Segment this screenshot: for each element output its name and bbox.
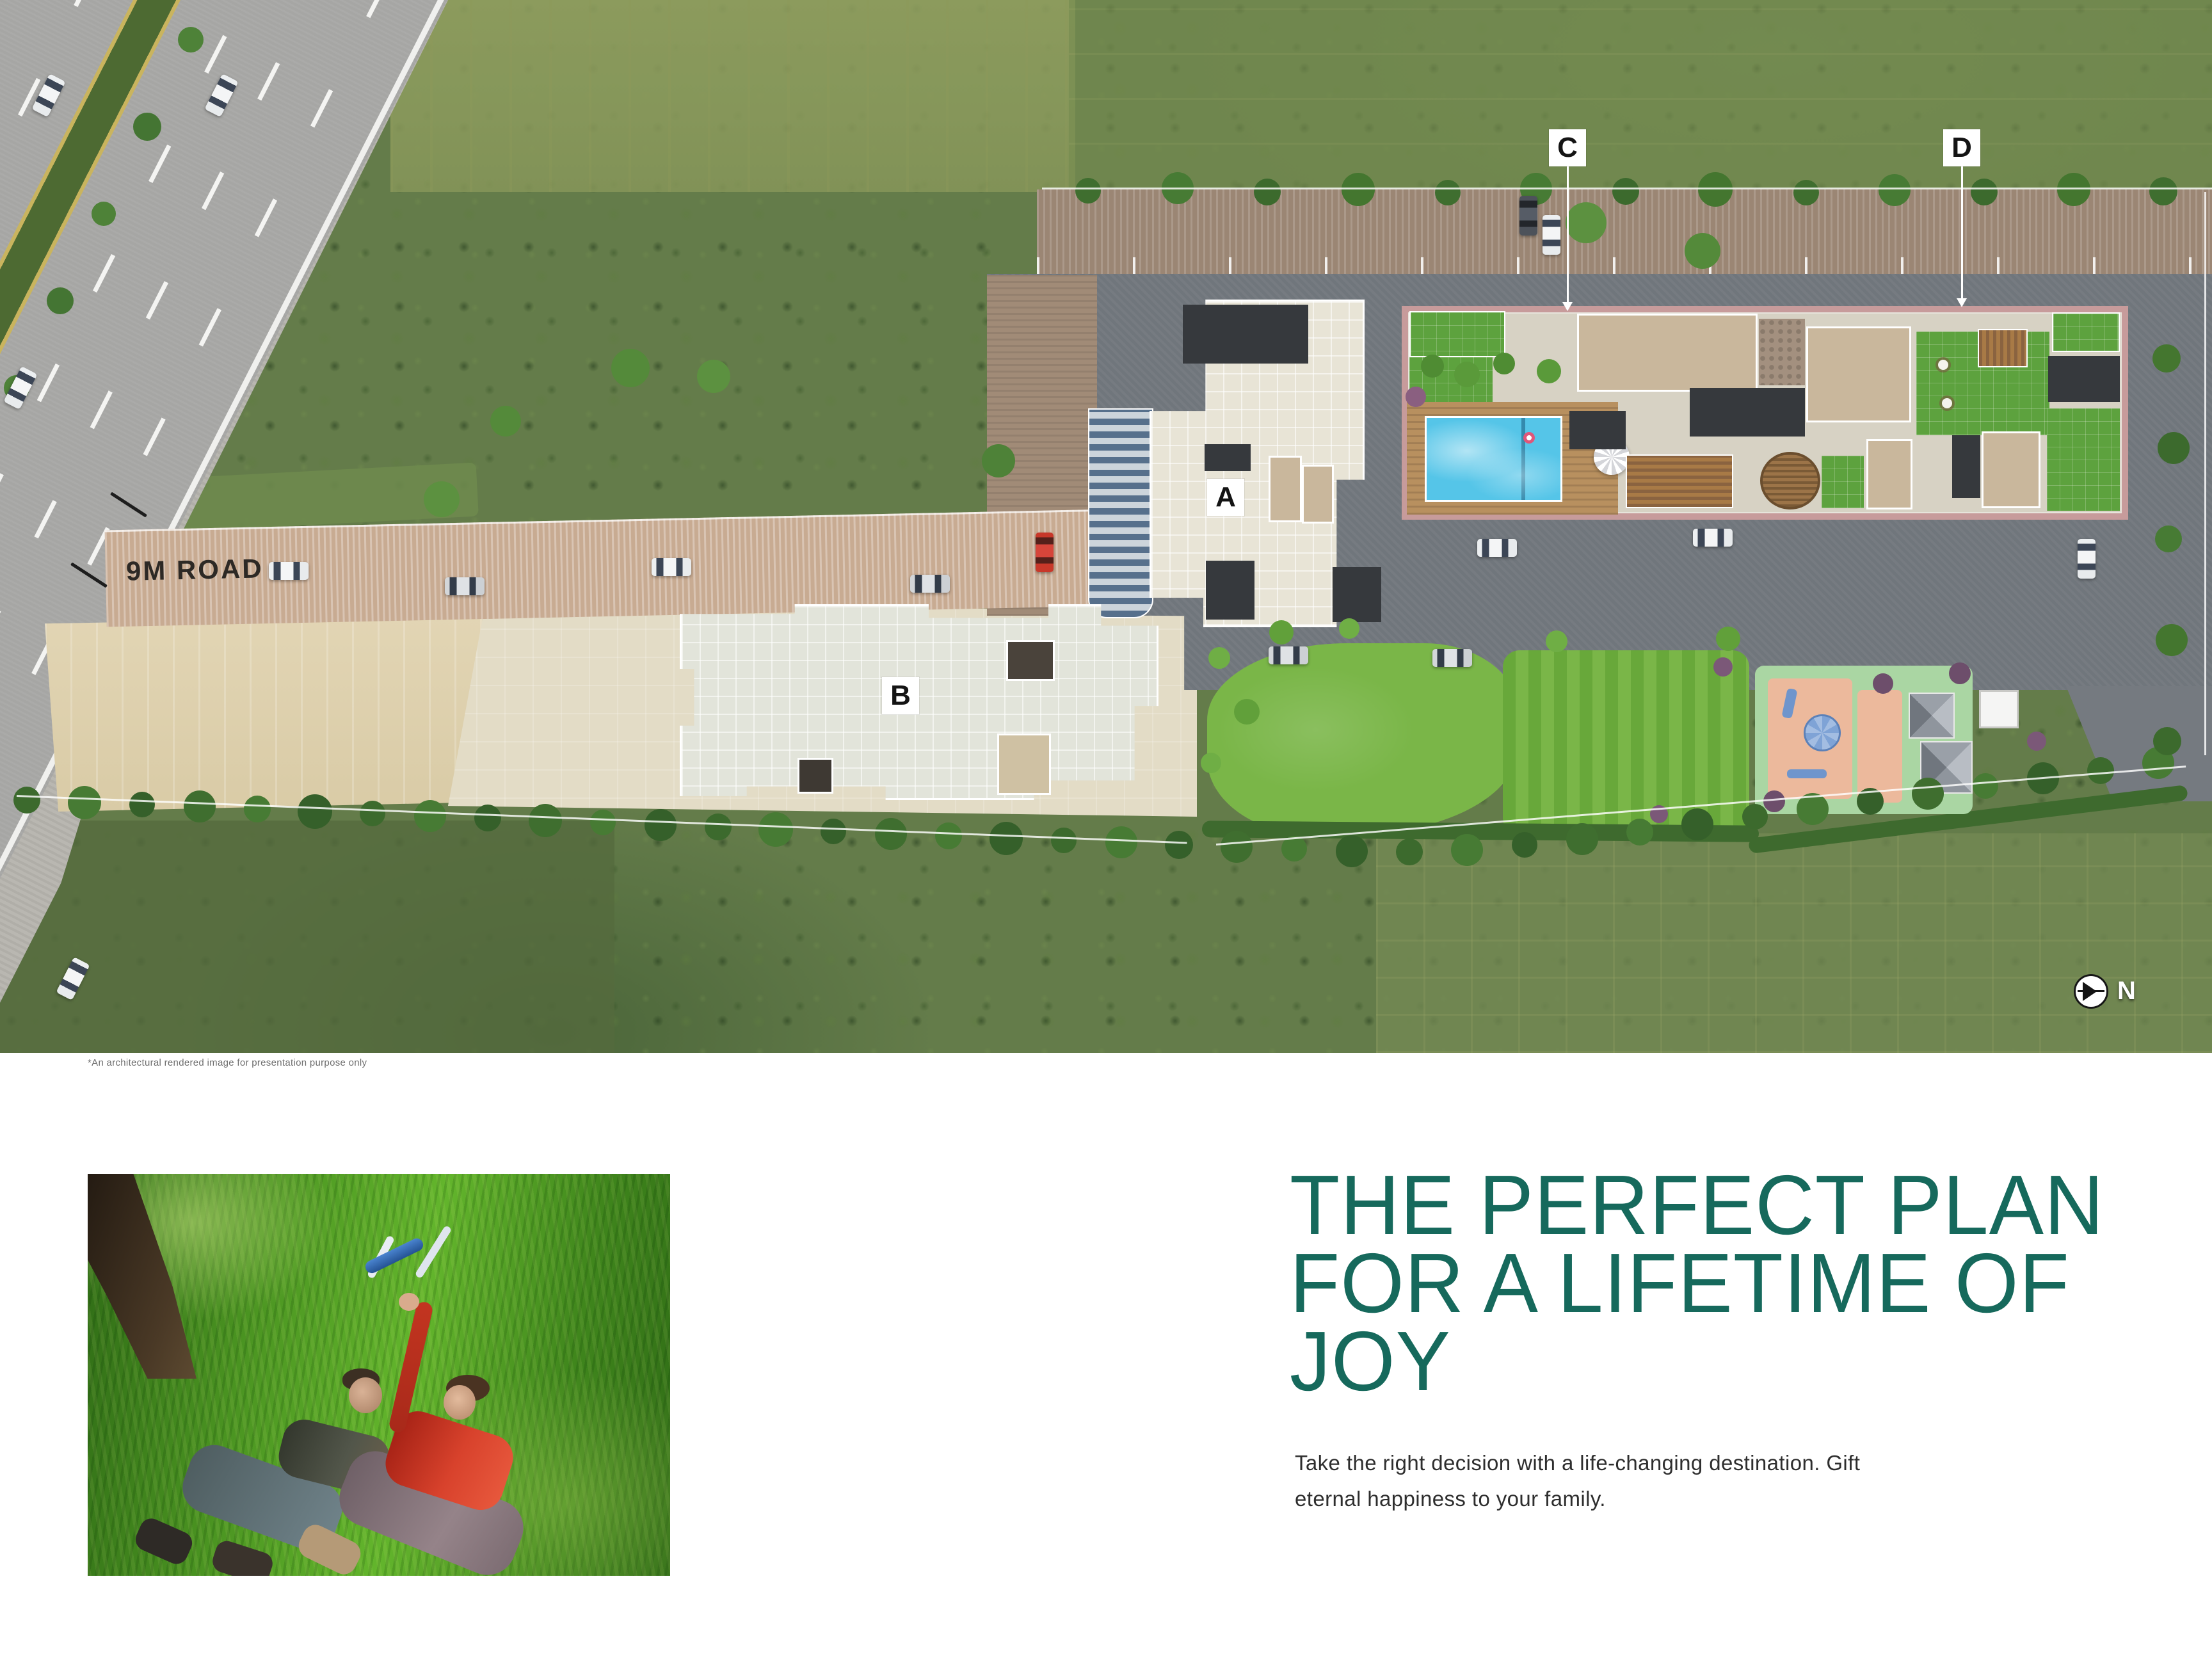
- label-letter: C: [1557, 132, 1578, 164]
- child-left-head: [349, 1377, 382, 1413]
- gazebo: [1979, 690, 2019, 728]
- leader-line-c: [1567, 166, 1569, 307]
- parked-car: [1543, 215, 1560, 255]
- headline: THE PERFECT PLAN FOR A LIFETIME OF JOY: [1290, 1166, 2177, 1400]
- tree-trunk: [88, 1174, 196, 1379]
- roof-block: [1302, 465, 1334, 524]
- roof-block: [2048, 356, 2120, 402]
- toy-airplane: [364, 1237, 426, 1276]
- building-label-b: B: [882, 677, 919, 714]
- car: [2078, 539, 2096, 579]
- body-line-1: Take the right decision with a life-chan…: [1295, 1445, 2205, 1481]
- ramp: [1088, 408, 1153, 618]
- garden-patch: [2047, 408, 2120, 511]
- roof-block: [1952, 435, 1980, 498]
- red-car: [1036, 533, 1054, 572]
- leader-line-d: [1961, 166, 1963, 303]
- car: [445, 577, 485, 595]
- child-left-shoe: [132, 1515, 196, 1567]
- roof-block: [1205, 444, 1251, 471]
- farm-field: [1069, 0, 2212, 189]
- brochure-page: 9M ROAD: [0, 0, 2212, 1659]
- building-label-a: A: [1207, 479, 1244, 516]
- master-plan-rendering: 9M ROAD: [0, 0, 2212, 1053]
- vacant-plot: [45, 616, 496, 812]
- text-block: THE PERFECT PLAN FOR A LIFETIME OF JOY T…: [1290, 1166, 2205, 1517]
- body-line-2: eternal happiness to your family.: [1295, 1481, 2205, 1517]
- north-letter: N: [2117, 977, 2136, 1006]
- play-surface: [1857, 690, 1902, 803]
- parking-strip: [1037, 189, 2212, 276]
- disclaimer-text: *An architectural rendered image for pre…: [88, 1057, 367, 1068]
- wood-deck: [1626, 454, 1733, 508]
- roof-block: [1206, 561, 1254, 620]
- striped-lawn: [1503, 650, 1749, 835]
- roof-block: [1006, 640, 1055, 681]
- child-right-hand: [399, 1293, 419, 1311]
- farm-field: [390, 0, 1075, 192]
- farm-field: [1376, 833, 2212, 1053]
- roof-block: [1690, 388, 1805, 437]
- site-boundary: [1042, 188, 2212, 189]
- headline-line-2: FOR A LIFETIME OF JOY: [1290, 1244, 2177, 1400]
- road-label: 9M ROAD: [125, 553, 264, 586]
- canopy-roof: [1909, 693, 1955, 739]
- building-b-footprint: [680, 604, 1158, 800]
- roof-block: [1183, 305, 1308, 364]
- child-left-shoe: [210, 1538, 276, 1576]
- building-label-d: D: [1943, 129, 1980, 166]
- roof-block: [1569, 411, 1626, 449]
- merry-go-round: [1804, 714, 1841, 751]
- green-roof: [2052, 312, 2120, 352]
- roof-block: [1806, 326, 1911, 422]
- paved-court: [1759, 319, 1805, 385]
- car: [1269, 646, 1308, 664]
- swimming-pool: [1425, 416, 1562, 502]
- car: [1693, 529, 1733, 547]
- roof-block: [1333, 567, 1381, 622]
- label-letter: D: [1952, 132, 1972, 164]
- central-lawn: [1207, 643, 1518, 835]
- toy-airplane-wing: [415, 1225, 453, 1279]
- compass-icon: [2074, 974, 2108, 1009]
- green-roof: [1409, 311, 1505, 357]
- car: [1432, 649, 1472, 667]
- north-indicator: N: [2074, 974, 2163, 1013]
- roof-block: [1982, 431, 2040, 508]
- roof-block: [997, 733, 1051, 795]
- label-letter: B: [890, 680, 911, 712]
- label-letter: A: [1215, 481, 1236, 513]
- play-equipment: [1787, 769, 1827, 778]
- car: [652, 558, 691, 576]
- body-text: Take the right decision with a life-chan…: [1295, 1445, 2205, 1517]
- building-label-c: C: [1549, 129, 1586, 166]
- roof-block: [797, 758, 833, 794]
- pergola: [1978, 329, 2028, 367]
- roof-block: [1269, 456, 1302, 522]
- farm-field: [0, 821, 614, 1053]
- circular-pergola: [1760, 452, 1820, 509]
- car: [269, 562, 309, 580]
- roof-block: [1866, 439, 1912, 509]
- car: [1477, 539, 1517, 557]
- child-right-head: [444, 1385, 476, 1420]
- site-boundary: [2204, 192, 2206, 755]
- headline-line-1: THE PERFECT PLAN: [1290, 1166, 2177, 1244]
- lifestyle-photo: [88, 1174, 670, 1576]
- parked-car: [1519, 196, 1537, 236]
- car: [910, 575, 950, 593]
- building-c-roof: [1577, 314, 1758, 392]
- garden-patch: [1822, 456, 1864, 508]
